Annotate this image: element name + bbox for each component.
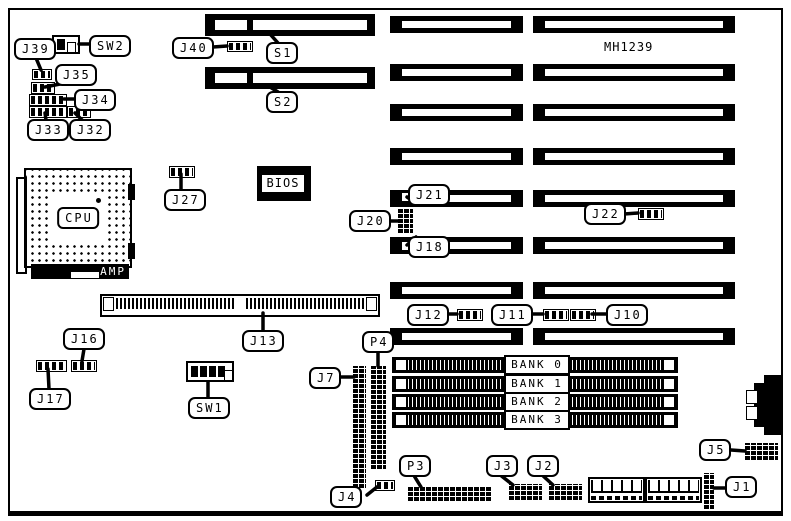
callout-j33: J33 — [27, 119, 69, 141]
leader-lines — [0, 0, 791, 521]
callout-j40: J40 — [172, 37, 214, 59]
callout-j22: J22 — [584, 203, 626, 225]
callout-j39: J39 — [14, 38, 56, 60]
callout-j5: J5 — [699, 439, 731, 461]
callout-p4: P4 — [362, 331, 394, 353]
callout-j11: J11 — [491, 304, 533, 326]
callout-j2: J2 — [527, 455, 559, 477]
callout-j20: J20 — [349, 210, 391, 232]
callout-j3: J3 — [486, 455, 518, 477]
callout-s1: S1 — [266, 42, 298, 64]
callout-j16: J16 — [63, 328, 105, 350]
callout-j35: J35 — [55, 64, 97, 86]
callout-sw2: SW2 — [89, 35, 131, 57]
callout-j7: J7 — [309, 367, 341, 389]
motherboard-diagram: J39 SW2 J35 J34 J33 J32 J40 S1 S2 MH1239… — [0, 0, 791, 521]
callout-j1: J1 — [725, 476, 757, 498]
callout-j17: J17 — [29, 388, 71, 410]
callout-j13: J13 — [242, 330, 284, 352]
callout-j27: J27 — [164, 189, 206, 211]
callout-j32: J32 — [69, 119, 111, 141]
callout-j18: J18 — [408, 236, 450, 258]
callout-j12: J12 — [407, 304, 449, 326]
callout-sw1: SW1 — [188, 397, 230, 419]
callout-p3: P3 — [399, 455, 431, 477]
callout-j21: J21 — [408, 184, 450, 206]
callout-j4: J4 — [330, 486, 362, 508]
callout-j34: J34 — [74, 89, 116, 111]
callout-j10: J10 — [606, 304, 648, 326]
callout-s2: S2 — [266, 91, 298, 113]
